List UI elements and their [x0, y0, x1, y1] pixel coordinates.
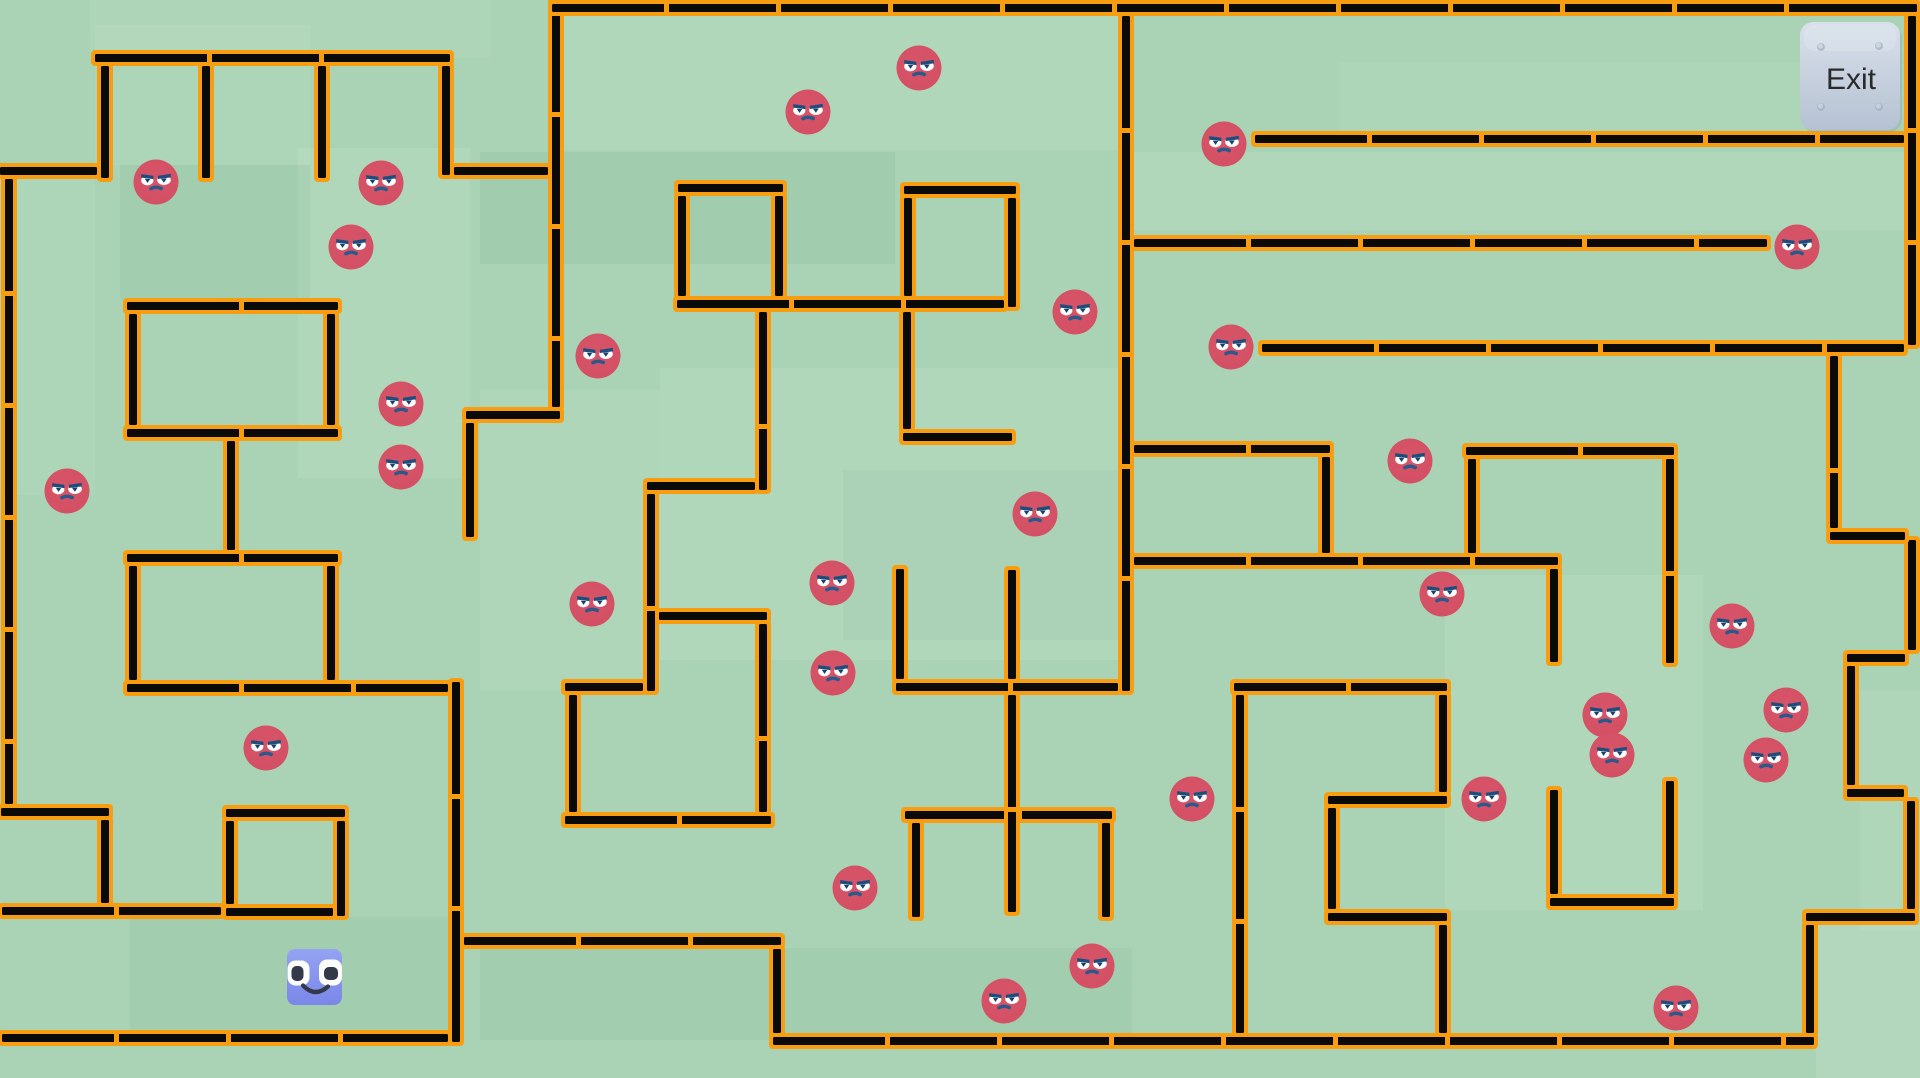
svg-text:Exit: Exit — [1826, 63, 1877, 96]
